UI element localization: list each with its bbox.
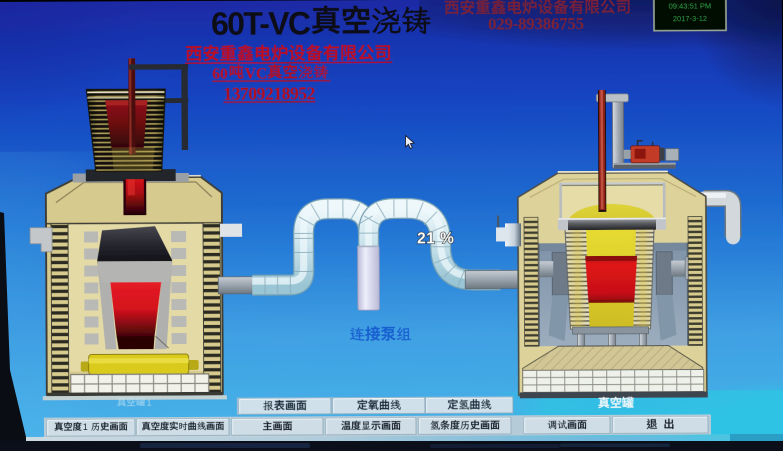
svg-text:VC: VC xyxy=(245,66,267,83)
svg-text:60T-VC: 60T-VC xyxy=(211,5,311,41)
svg-text:2017-3-12: 2017-3-12 xyxy=(673,14,707,23)
svg-text:029-89386755: 029-89386755 xyxy=(488,14,584,33)
svg-text:1: 1 xyxy=(83,422,88,432)
svg-text:60: 60 xyxy=(212,66,228,83)
svg-text:21 %: 21 % xyxy=(417,230,454,247)
svg-text:09:43:51 PM: 09:43:51 PM xyxy=(669,1,712,10)
svg-text:1: 1 xyxy=(146,398,151,408)
svg-text:13709218952: 13709218952 xyxy=(223,83,315,103)
